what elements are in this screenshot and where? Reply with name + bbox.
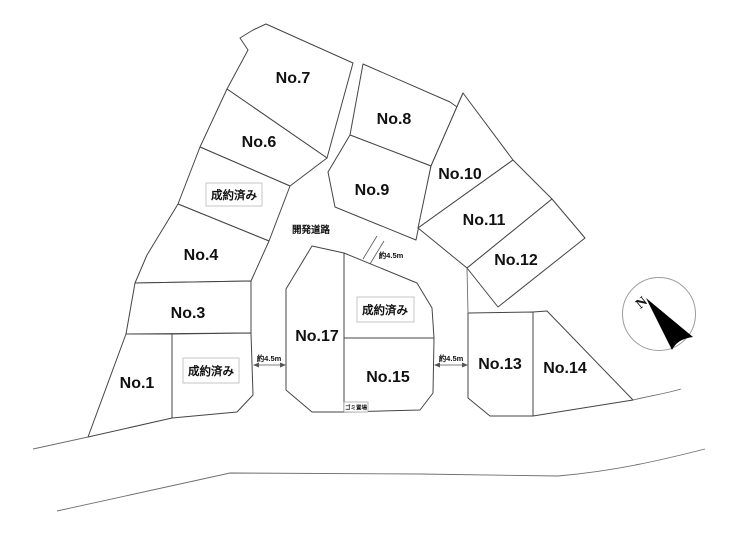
road-edge-east-branch	[467, 268, 468, 313]
dim-arrow-right-w	[434, 363, 440, 368]
lot-no12-label: No.12	[494, 252, 538, 269]
road-edge-lower	[57, 449, 705, 511]
lot-no1-label: No.1	[120, 375, 155, 392]
lot-no16-sold-shape	[344, 253, 434, 338]
lot-no13-label: No.13	[478, 356, 522, 373]
lot-no10-label: No.10	[438, 166, 482, 183]
lot-no9-label: No.9	[355, 182, 390, 199]
development-road-label: 開発道路	[292, 224, 331, 236]
road-edge-upper-right	[633, 389, 681, 400]
compass: N	[623, 278, 696, 351]
lot-no14-label: No.14	[543, 360, 587, 377]
lot-no15-label: No.15	[366, 369, 410, 386]
lot-no3-label: No.3	[171, 305, 206, 322]
sold-label-lot5: 成約済み	[211, 188, 257, 202]
lot-no4-label: No.4	[184, 247, 219, 264]
lot-no7-label: No.7	[276, 70, 311, 87]
road-width-right-label: 約4.5m	[439, 353, 464, 363]
lot-no6-label: No.6	[242, 134, 277, 151]
road-edge-upper-left	[33, 437, 88, 449]
dim-arrow-right-e	[462, 363, 468, 368]
site-plan-svg: No.7 No.6 No.4 No.3 No.1 No.8 No.9 No.10…	[0, 0, 740, 537]
sold-label-lot2: 成約済み	[188, 364, 234, 378]
road-width-upper-label: 約4.5m	[379, 250, 404, 260]
road-width-left-label: 約4.5m	[257, 353, 282, 363]
dim-arrow-left-w	[253, 363, 259, 368]
site-plan: No.7 No.6 No.4 No.3 No.1 No.8 No.9 No.10…	[0, 0, 740, 537]
lot-no8-label: No.8	[377, 111, 412, 128]
dim-arrow-left-e	[280, 363, 286, 368]
lot-no17-label: No.17	[295, 328, 339, 345]
lot-no11-label: No.11	[463, 212, 506, 229]
sold-label-lot16: 成約済み	[362, 303, 408, 317]
garbage-station-label: ゴミ置場	[345, 404, 368, 412]
